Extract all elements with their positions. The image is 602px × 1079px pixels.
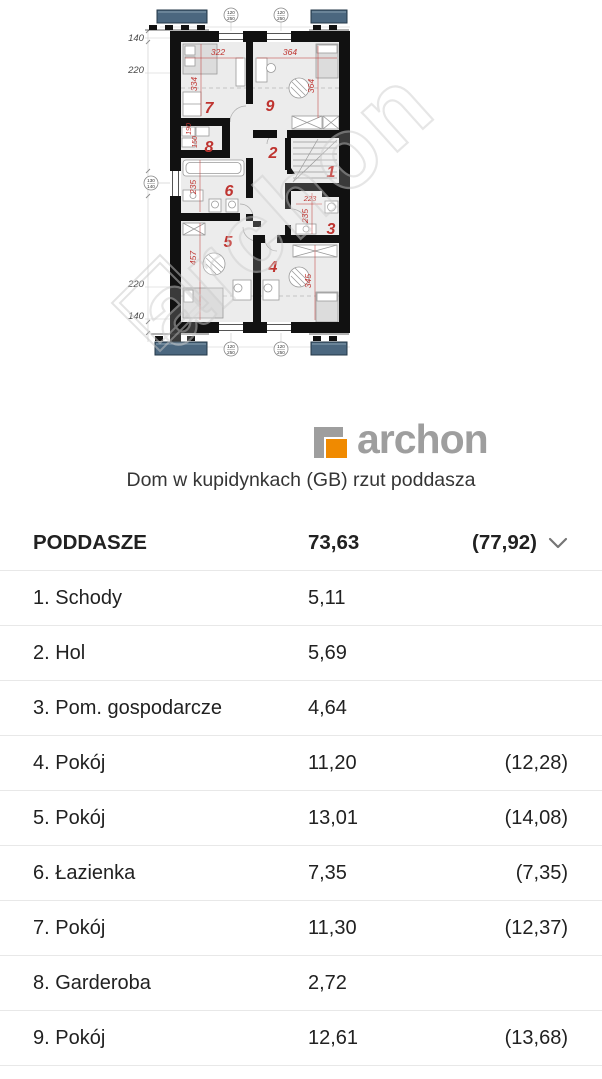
dim-150: 150 <box>192 136 199 148</box>
dim-364-top: 364 <box>283 47 297 57</box>
dim-334: 334 <box>189 77 199 91</box>
room-number-9: 9 <box>266 98 275 115</box>
dim-364-right: 364 <box>306 79 316 93</box>
archon-logo: archon <box>314 413 488 459</box>
table-row: 3. Pom. gospodarcze 4,64 <box>0 681 602 736</box>
window-marker-left: 130 140 <box>144 176 158 190</box>
table-row: 2. Hol 5,69 <box>0 626 602 681</box>
room-area-secondary: (13,68) <box>505 1027 568 1050</box>
table-header-row[interactable]: PODDASZE 73,63 (77,92) <box>0 516 602 571</box>
room-name: 9. Pokój <box>33 1027 105 1050</box>
archon-logo-icon <box>314 427 348 459</box>
svg-text:120: 120 <box>227 344 235 349</box>
room-area-secondary: (7,35) <box>516 862 568 885</box>
floor-plan-svg: 7 9 8 2 1 6 3 5 4 322 364 334 364 190 15… <box>0 0 602 402</box>
floor-area-secondary: (77,92) <box>472 531 537 555</box>
room-number-8: 8 <box>205 139 214 156</box>
room-area-secondary: (12,37) <box>505 917 568 940</box>
page-title: Dom w kupidynkach (GB) rzut poddasza <box>0 469 602 492</box>
room-area: 4,64 <box>308 697 347 720</box>
table-row: 4. Pokój 11,20 (12,28) <box>0 736 602 791</box>
room-area: 7,35 <box>308 862 347 885</box>
window-marker-bottom-left: 120 250 <box>224 342 238 356</box>
svg-text:250: 250 <box>277 16 285 21</box>
page: 7 9 8 2 1 6 3 5 4 322 364 334 364 190 15… <box>0 0 602 1079</box>
floor-name: PODDASZE <box>33 531 147 555</box>
table-row: 5. Pokój 13,01 (14,08) <box>0 791 602 846</box>
table-row: 9. Pokój 12,61 (13,68) <box>0 1011 602 1066</box>
svg-text:130: 130 <box>147 178 155 183</box>
table-row: 6. Łazienka 7,35 (7,35) <box>0 846 602 901</box>
room-number-7: 7 <box>205 100 215 117</box>
room-name: 1. Schody <box>33 587 122 610</box>
side-dim-140-top: 140 <box>128 33 145 44</box>
dim-235-bath: 235 <box>188 180 198 195</box>
room-area: 11,30 <box>308 917 357 940</box>
floor-plan-image: 7 9 8 2 1 6 3 5 4 322 364 334 364 190 15… <box>0 0 602 402</box>
chevron-down-icon[interactable] <box>548 537 568 549</box>
room-name: 3. Pom. gospodarcze <box>33 697 222 720</box>
room-area: 2,72 <box>308 972 347 995</box>
floor-area: 73,63 <box>308 531 359 555</box>
svg-text:120: 120 <box>277 344 285 349</box>
room-area: 12,61 <box>308 1027 358 1050</box>
room-name: 7. Pokój <box>33 917 105 940</box>
svg-text:250: 250 <box>277 350 285 355</box>
table-row: 1. Schody 5,11 <box>0 571 602 626</box>
svg-text:120: 120 <box>277 10 285 15</box>
svg-text:120: 120 <box>227 10 235 15</box>
window-marker-top-left: 120 250 <box>224 8 238 22</box>
svg-text:250: 250 <box>227 350 235 355</box>
svg-text:140: 140 <box>147 184 155 189</box>
room-area: 13,01 <box>308 807 358 830</box>
room-area: 5,11 <box>308 587 345 610</box>
svg-text:250: 250 <box>227 16 235 21</box>
room-area-secondary: (14,08) <box>505 807 568 830</box>
window-marker-bottom-right: 120 250 <box>274 342 288 356</box>
room-name: 6. Łazienka <box>33 862 135 885</box>
window-marker-top-right: 120 250 <box>274 8 288 22</box>
rooms-table: PODDASZE 73,63 (77,92) 1. Schody 5,11 2.… <box>0 516 602 1066</box>
table-row: 8. Garderoba 2,72 <box>0 956 602 1011</box>
room-name: 2. Hol <box>33 642 85 665</box>
dim-190: 190 <box>186 123 193 135</box>
dim-345: 345 <box>303 274 313 288</box>
room-area: 11,20 <box>308 752 357 775</box>
room-area: 5,69 <box>308 642 347 665</box>
dim-322: 322 <box>211 47 225 57</box>
table-row: 7. Pokój 11,30 (12,37) <box>0 901 602 956</box>
room-name: 5. Pokój <box>33 807 105 830</box>
room-area-secondary: (12,28) <box>505 752 568 775</box>
room-name: 8. Garderoba <box>33 972 151 995</box>
side-dim-220-top: 220 <box>127 65 145 76</box>
room-name: 4. Pokój <box>33 752 105 775</box>
archon-logo-text: archon <box>357 419 488 459</box>
